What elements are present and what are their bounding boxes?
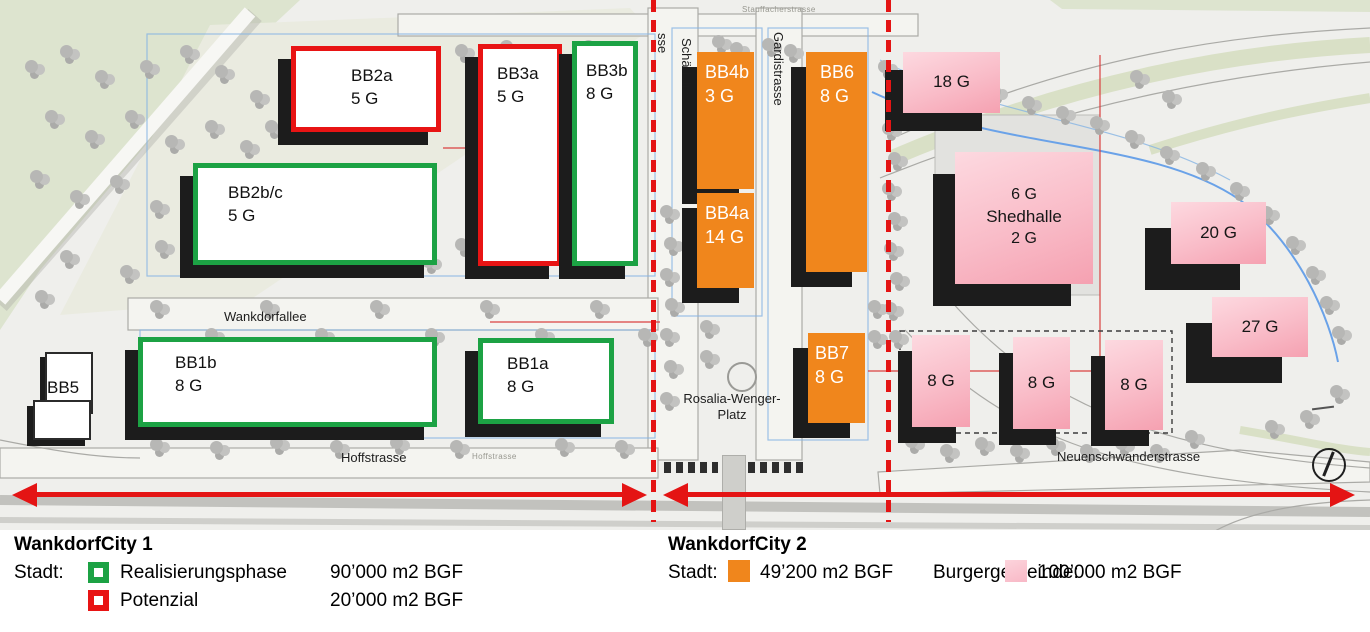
divider-wc1-wc2 (651, 0, 656, 522)
tree (1125, 130, 1138, 143)
tree (1320, 296, 1333, 309)
tree (215, 65, 228, 78)
legend-realisierung-value: 90’000 m2 BGF (330, 562, 463, 584)
tree (660, 268, 673, 281)
tree (140, 60, 153, 73)
building-18g: 18 G (903, 52, 1000, 113)
tree (868, 330, 881, 343)
tree (480, 300, 493, 313)
building-bb2bc: BB2b/c 5 G (193, 163, 437, 265)
building-8g-1: 8 G (912, 335, 970, 427)
building-id: BB7 (815, 341, 865, 365)
tree (590, 300, 603, 313)
building-id: BB3a (497, 63, 557, 86)
legend-swatch-potenzial (88, 590, 109, 611)
building-20g: 20 G (1171, 202, 1266, 264)
tree (370, 300, 383, 313)
tree (180, 45, 193, 58)
tree (1162, 90, 1175, 103)
wc1-extent-bar (34, 492, 624, 497)
tree (1160, 146, 1173, 159)
legend-potenzial-value: 20’000 m2 BGF (330, 590, 463, 612)
building-8g-2: 8 G (1013, 337, 1070, 429)
building-id: BB3b (586, 60, 633, 83)
tree (450, 440, 463, 453)
tree (868, 300, 881, 313)
tree (712, 35, 725, 48)
legend-swatch-burgergemeinde-pink (1005, 560, 1027, 582)
building-floors: 8 G (507, 376, 609, 399)
tree (240, 140, 253, 153)
building-bb5: BB5 (33, 352, 109, 440)
tree (210, 441, 223, 454)
tree (1332, 326, 1345, 339)
building-27g: 27 G (1212, 297, 1308, 357)
tree (700, 320, 713, 333)
building-floors: 14 G (705, 225, 754, 249)
site-plan-map: BB2a 5 G BB2b/c 5 G BB3a 5 G BB3b 8 G BB… (0, 0, 1370, 530)
tree (1022, 96, 1035, 109)
building-id: BB1b (175, 352, 432, 375)
wc1-arrow-right (622, 483, 647, 507)
tree (1300, 410, 1313, 423)
tree (700, 350, 713, 363)
building-floors: 8 G (1028, 372, 1055, 395)
street-label-schaedelinstrasse-fragment: sse (655, 33, 670, 53)
building-floors: 5 G (497, 86, 557, 109)
building-floors: 20 G (1200, 222, 1237, 245)
building-bb2a: BB2a 5 G (291, 46, 441, 132)
building-floors: 8 G (815, 365, 865, 389)
tree (150, 300, 163, 313)
street-label-wankdorfallee: Wankdorfallee (224, 309, 307, 324)
building-floors: 8 G (1120, 374, 1147, 397)
street-label-hoffstrasse-small: Hoffstrasse (472, 452, 517, 461)
tree (205, 120, 218, 133)
tree (250, 90, 263, 103)
building-floors-top: 6 G (1011, 184, 1037, 206)
tree (665, 298, 678, 311)
building-id: BB6 (820, 60, 867, 84)
street-label-gardistrasse: Gardistrasse (771, 32, 786, 106)
building-bb7: BB7 8 G (808, 333, 865, 423)
tree (1306, 266, 1319, 279)
building-bb6: BB6 8 G (806, 52, 867, 272)
tree (615, 440, 628, 453)
building-bb1a: BB1a 8 G (478, 338, 614, 424)
wc1-arrow-left (12, 483, 37, 507)
street-label-neuenschwanderstrasse: Neuenschwanderstrasse (1057, 449, 1200, 464)
legend-wc1-owner: Stadt: (14, 562, 64, 584)
building-bb4a: BB4a 14 G (697, 193, 754, 288)
tree (110, 175, 123, 188)
tree (660, 205, 673, 218)
tree (555, 438, 568, 451)
building-floors: 8 G (175, 375, 432, 398)
tree (890, 272, 903, 285)
divider-stadt-burgergemeinde (886, 0, 891, 522)
tree (660, 328, 673, 341)
tree (155, 240, 168, 253)
tree (1330, 385, 1343, 398)
tree (60, 250, 73, 263)
legend-potenzial-label: Potenzial (120, 590, 198, 612)
legend-swatch-realisierung (88, 562, 109, 583)
building-floors: 5 G (351, 88, 436, 111)
building-id: BB2b/c (228, 182, 432, 205)
building-bb3b: BB3b 8 G (572, 41, 638, 266)
building-floors: 8 G (820, 84, 867, 108)
street-label-stauffacherstrasse: Stauffacherstrasse (742, 5, 816, 14)
tree (455, 44, 468, 57)
tree (1130, 70, 1143, 83)
building-shedhalle: 6 G Shedhalle 2 G (955, 152, 1093, 284)
tree (905, 435, 918, 448)
tree (1185, 430, 1198, 443)
building-floors: 27 G (1242, 316, 1279, 339)
tree (35, 290, 48, 303)
legend-swatch-stadt-orange (728, 560, 750, 582)
building-floors: 8 G (927, 370, 954, 393)
compass-icon (1312, 448, 1346, 482)
legend-wc2-title: WankdorfCity 2 (668, 534, 807, 556)
tree (150, 438, 163, 451)
tree (125, 110, 138, 123)
tree (45, 110, 58, 123)
building-id: BB1a (507, 353, 609, 376)
wc2-arrow-right (1330, 483, 1355, 507)
building-id: BB4b (705, 60, 754, 84)
building-bb1b: BB1b 8 G (138, 337, 437, 427)
tree (1056, 106, 1069, 119)
building-bb4b: BB4b 3 G (697, 52, 754, 189)
building-8g-3: 8 G (1105, 340, 1163, 430)
building-bb3a: BB3a 5 G (478, 44, 562, 266)
building-id: BB4a (705, 201, 754, 225)
tree (120, 265, 133, 278)
compass-needle (1322, 451, 1335, 476)
plaza-circle (727, 362, 757, 392)
tree (1286, 236, 1299, 249)
legend-wc1-title: WankdorfCity 1 (14, 534, 153, 556)
tree (85, 130, 98, 143)
platform-ticks (748, 462, 806, 473)
tree (1010, 444, 1023, 457)
street-label-schaedelinstrasse: Schädelinstra (679, 38, 694, 117)
building-floors: 18 G (933, 71, 970, 94)
site-plan-page: { "map": { "street_labels": { "stauffach… (0, 0, 1370, 632)
building-floors: 5 G (228, 205, 432, 228)
building-floors: 3 G (705, 84, 754, 108)
tree (95, 70, 108, 83)
building-floors: 8 G (586, 83, 633, 106)
tree (265, 120, 278, 133)
tree (390, 436, 403, 449)
platform-ticks (664, 462, 718, 473)
building-id: BB2a (351, 65, 436, 88)
plaza-label-line2: Platz (666, 407, 798, 422)
legend-burgergemeinde-value: 100’000 m2 BGF (1038, 562, 1182, 584)
building-floors-bottom: 2 G (1011, 228, 1037, 250)
tree (455, 238, 468, 251)
tree (1196, 162, 1209, 175)
tree (975, 437, 988, 450)
tree (25, 60, 38, 73)
tree (60, 45, 73, 58)
building-id: BB5 (47, 378, 79, 398)
wc2-arrow-left (663, 483, 688, 507)
tree (270, 436, 283, 449)
legend-wc2-owner: Stadt: (668, 562, 718, 584)
tree (30, 170, 43, 183)
tree (1090, 116, 1103, 129)
legend-stadt-value: 49’200 m2 BGF (760, 562, 893, 584)
building-name: Shedhalle (986, 206, 1062, 229)
building-bb5-shape (33, 400, 91, 440)
wc2-extent-bar (686, 492, 1332, 497)
tree (1265, 420, 1278, 433)
tree (638, 328, 651, 341)
tree (165, 135, 178, 148)
tree (664, 237, 677, 250)
tree (150, 200, 163, 213)
tree (70, 190, 83, 203)
tree (1230, 182, 1243, 195)
legend-realisierung-label: Realisierungsphase (120, 562, 287, 584)
tree (940, 444, 953, 457)
street-label-hoffstrasse: Hoffstrasse (341, 450, 407, 465)
plaza-label-line1: Rosalia-Wenger- (666, 391, 798, 406)
tree (664, 360, 677, 373)
